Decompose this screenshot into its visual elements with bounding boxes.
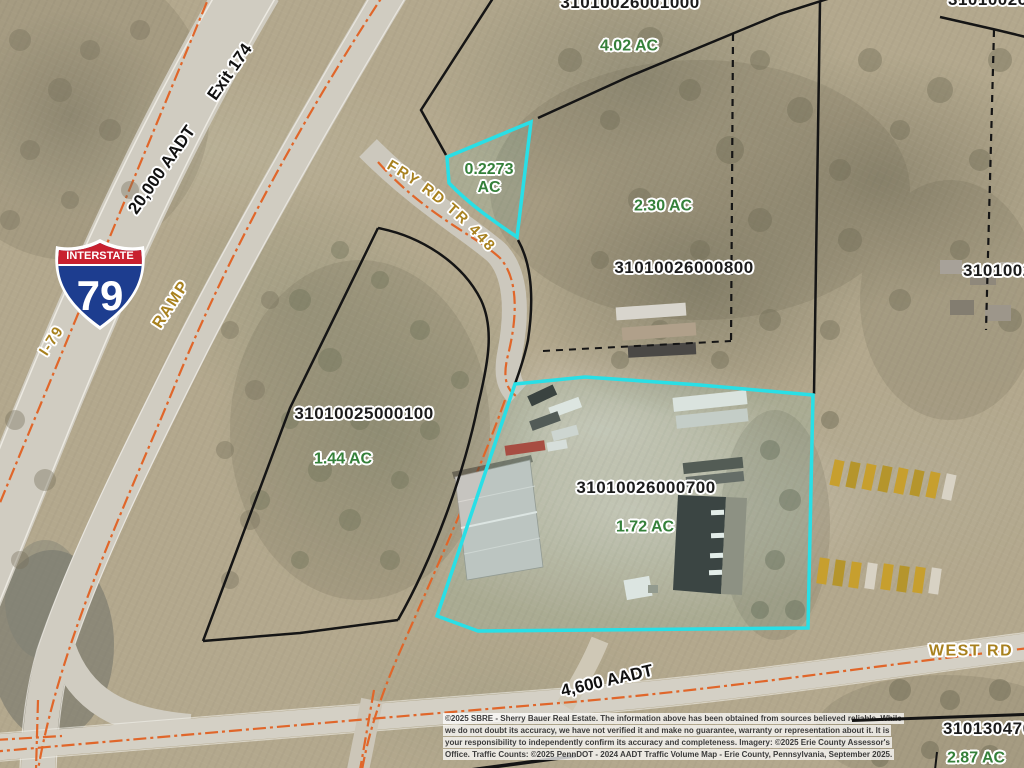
acreage-1-72: 1.72 AC xyxy=(616,520,674,537)
parcel-number-topright-partial: 31010026 xyxy=(948,0,1024,9)
disclaimer-line-1: ©2025 SBRE - Sherry Bauer Real Estate. T… xyxy=(443,713,904,724)
acreage-2-87: 2.87 AC xyxy=(947,751,1005,768)
disclaimer-line-4: Office. Traffic Counts: ©2025 PennDOT - … xyxy=(443,749,894,760)
disclaimer-line-3: your responsibility to independently con… xyxy=(443,737,892,748)
acreage-0-2273: 0.2273 AC xyxy=(465,161,514,197)
parcel-number-31010026000800: 31010026000800 xyxy=(614,259,753,277)
highlight-parcel-large xyxy=(437,377,813,631)
parcel-number-31010025000100: 31010025000100 xyxy=(294,405,433,423)
acreage-2-30: 2.30 AC xyxy=(634,199,692,216)
acreage-1-44: 1.44 AC xyxy=(314,452,372,469)
acreage-0-2273-value: 0.2273 xyxy=(465,161,514,179)
parcel-number-31010026000700: 31010026000700 xyxy=(576,479,715,497)
parcel-map: FRY RD TR 448 INTERSTATE 79 310100260010… xyxy=(0,0,1024,768)
shield-number-text: 79 xyxy=(77,272,124,319)
map-linework: FRY RD TR 448 xyxy=(0,0,1024,768)
disclaimer-line-2: we do not doubt its accuracy, we have no… xyxy=(443,725,891,736)
parcel-number-31010026001000: 31010026001000 xyxy=(560,0,699,12)
acreage-0-2273-unit: AC xyxy=(465,179,514,197)
acreage-4-02: 4.02 AC xyxy=(600,39,658,56)
equipment-yellow xyxy=(816,459,956,594)
west-rd-label: WEST RD xyxy=(929,644,1013,661)
parcel-number-east-partial: 3101002 xyxy=(963,262,1024,280)
parcel-number-310130470-partial: 310130470 xyxy=(943,720,1024,738)
interstate-79-shield: INTERSTATE 79 xyxy=(54,237,146,331)
shield-banner-text: INTERSTATE xyxy=(66,250,133,262)
